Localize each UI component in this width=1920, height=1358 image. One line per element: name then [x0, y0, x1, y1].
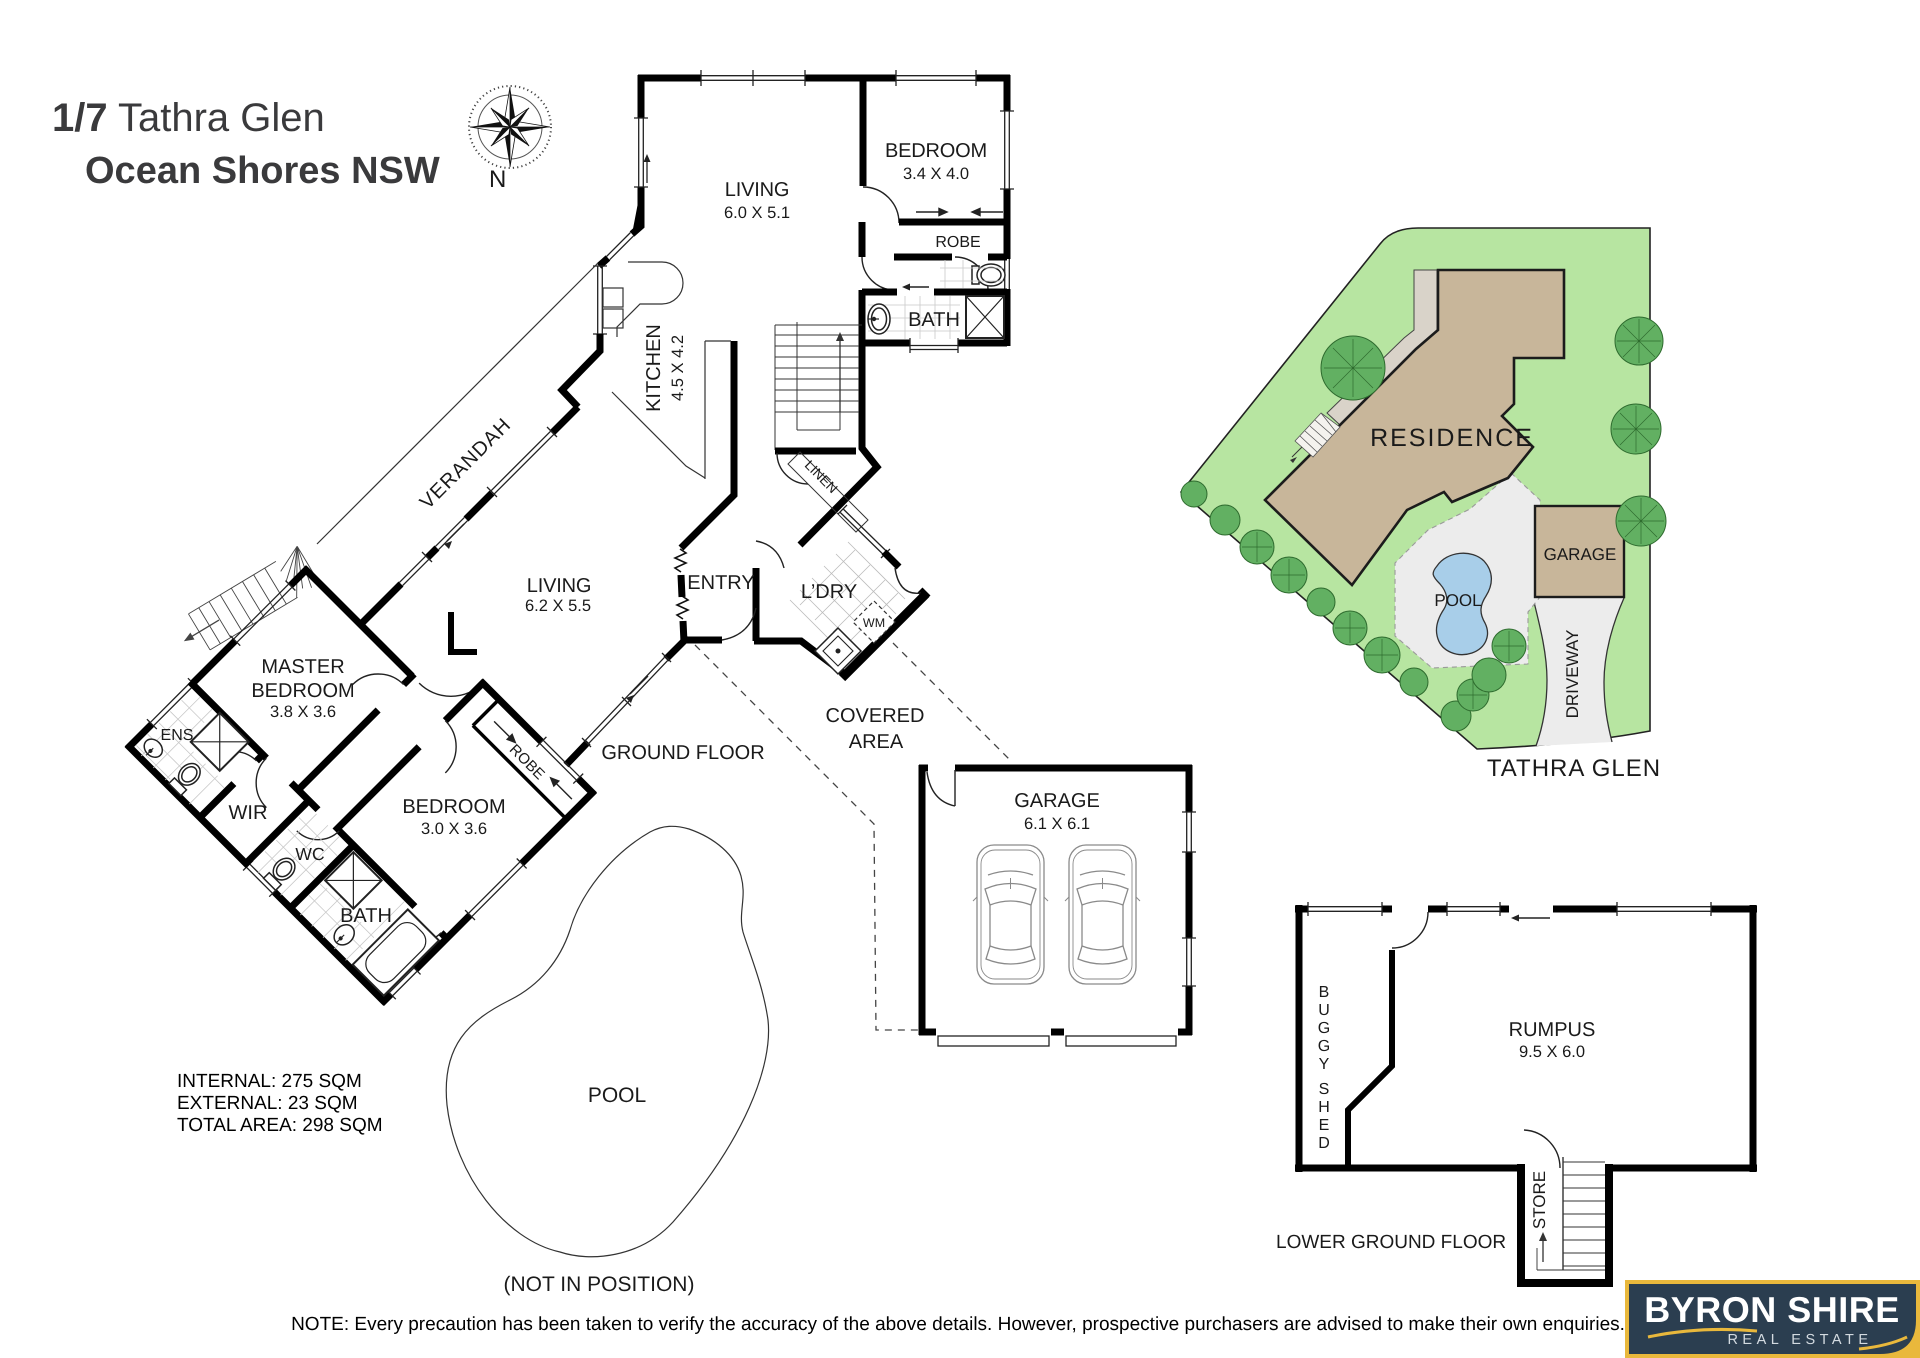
svg-text:3.4 X 4.0: 3.4 X 4.0 [903, 165, 969, 183]
svg-text:WC: WC [295, 844, 324, 864]
svg-text:NOTE: Every precaution has bee: NOTE: Every precaution has been taken to… [291, 1314, 1625, 1335]
svg-text:Ocean Shores NSW: Ocean Shores NSW [85, 150, 440, 192]
svg-text:GARAGE: GARAGE [1014, 790, 1100, 812]
svg-text:POOL: POOL [1434, 591, 1481, 610]
svg-text:E: E [1319, 1117, 1330, 1134]
svg-text:G: G [1318, 1038, 1330, 1055]
svg-text:ENTRY: ENTRY [687, 572, 754, 594]
svg-text:BEDROOM: BEDROOM [251, 680, 354, 702]
svg-text:U: U [1318, 1002, 1330, 1019]
svg-text:BATH: BATH [908, 309, 960, 331]
svg-text:STORE: STORE [1530, 1171, 1549, 1229]
svg-text:BEDROOM: BEDROOM [402, 796, 505, 818]
svg-text:L’DRY: L’DRY [801, 581, 857, 603]
svg-text:DRIVEWAY: DRIVEWAY [1563, 630, 1582, 719]
svg-text:3.8 X 3.6: 3.8 X 3.6 [270, 703, 336, 721]
svg-text:RESIDENCE: RESIDENCE [1370, 424, 1534, 452]
svg-text:4.5 X 4.2: 4.5 X 4.2 [669, 335, 687, 401]
svg-text:D: D [1318, 1135, 1330, 1152]
svg-text:COVERED: COVERED [826, 705, 925, 727]
svg-text:Y: Y [1319, 1056, 1330, 1073]
svg-text:WIR: WIR [229, 802, 268, 824]
svg-text:AREA: AREA [849, 731, 904, 753]
svg-text:6.2 X 5.5: 6.2 X 5.5 [525, 597, 591, 615]
svg-text:6.1 X 6.1: 6.1 X 6.1 [1024, 815, 1090, 833]
svg-text:BATH: BATH [340, 905, 392, 927]
svg-text:BYRON SHIRE: BYRON SHIRE [1644, 1289, 1900, 1330]
svg-text:3.0 X 3.6: 3.0 X 3.6 [421, 820, 487, 838]
svg-text:9.5 X 6.0: 9.5 X 6.0 [1519, 1043, 1585, 1061]
svg-text:MASTER: MASTER [261, 656, 344, 678]
svg-text:TOTAL AREA: 298 SQM: TOTAL AREA: 298 SQM [177, 1115, 383, 1136]
svg-text:ENS: ENS [161, 727, 194, 744]
svg-text:LIVING: LIVING [527, 575, 591, 597]
svg-text:WM: WM [863, 616, 885, 630]
svg-text:POOL: POOL [588, 1084, 646, 1107]
svg-text:REAL ESTATE: REAL ESTATE [1727, 1332, 1872, 1348]
svg-text:INTERNAL: 275 SQM: INTERNAL: 275 SQM [177, 1071, 362, 1092]
svg-text:KITCHEN: KITCHEN [643, 324, 665, 412]
svg-text:LIVING: LIVING [725, 179, 789, 201]
svg-text:B: B [1319, 984, 1330, 1001]
svg-text:1/7 Tathra Glen: 1/7 Tathra Glen [52, 96, 325, 140]
svg-text:H: H [1318, 1099, 1330, 1116]
svg-text:N: N [489, 166, 506, 193]
svg-text:RUMPUS: RUMPUS [1509, 1019, 1596, 1041]
svg-text:GARAGE: GARAGE [1544, 545, 1617, 564]
svg-text:TATHRA GLEN: TATHRA GLEN [1487, 755, 1661, 782]
svg-text:G: G [1318, 1020, 1330, 1037]
svg-text:EXTERNAL: 23 SQM: EXTERNAL: 23 SQM [177, 1093, 358, 1114]
svg-text:S: S [1319, 1081, 1330, 1098]
svg-text:GROUND FLOOR: GROUND FLOOR [601, 742, 764, 764]
svg-text:BEDROOM: BEDROOM [885, 140, 987, 162]
svg-text:ROBE: ROBE [935, 234, 980, 251]
svg-text:LOWER GROUND FLOOR: LOWER GROUND FLOOR [1276, 1232, 1506, 1253]
svg-text:6.0 X 5.1: 6.0 X 5.1 [724, 204, 790, 222]
svg-text:(NOT IN POSITION): (NOT IN POSITION) [504, 1273, 695, 1296]
